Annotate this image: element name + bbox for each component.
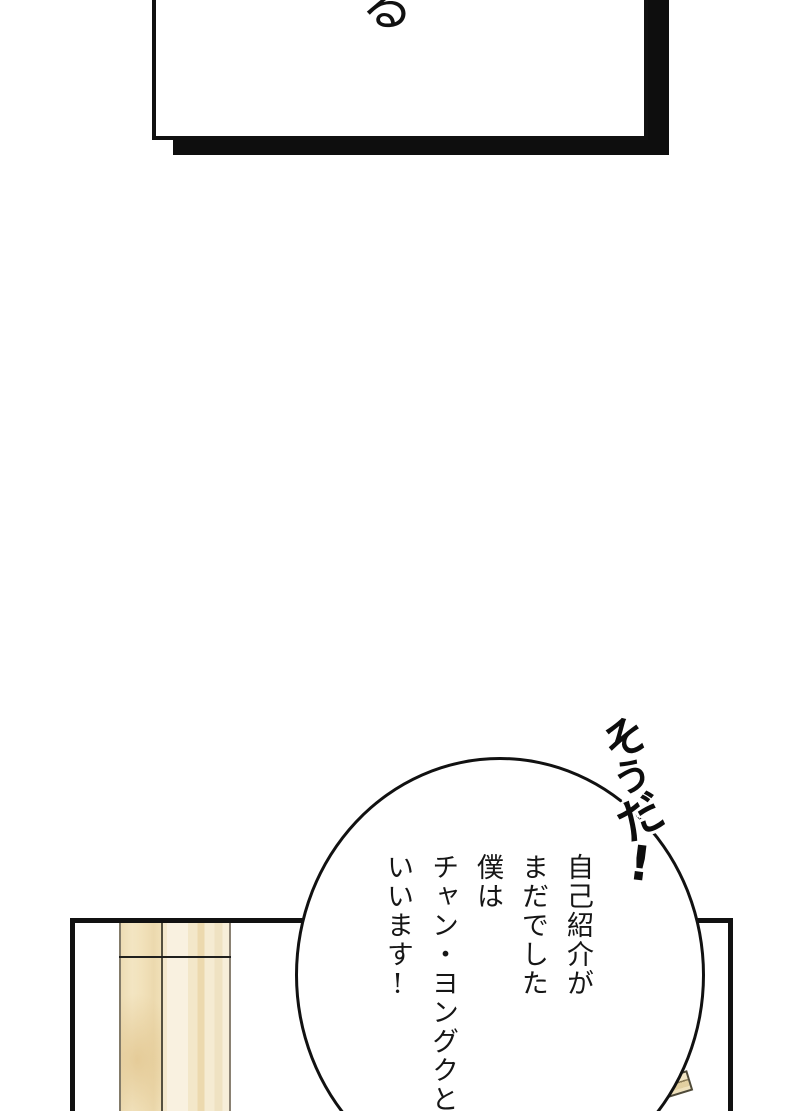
- speech-line: まだでした: [510, 853, 555, 1111]
- speech-bubble-text: 自己紹介が まだでした 僕は チャン・ヨングクと いいます!: [375, 853, 600, 1111]
- speech-line: 僕は: [465, 853, 510, 1111]
- wood-plank-right: [163, 923, 231, 1111]
- caption-box: る: [152, 0, 648, 140]
- speech-line: いいます!: [375, 853, 420, 1111]
- wood-plank-left: [119, 923, 163, 1111]
- speech-line: 自己紹介が: [555, 853, 600, 1111]
- speech-line: チャン・ヨングクと: [420, 853, 465, 1111]
- caption-text: る: [361, 0, 413, 34]
- manga-page: る 自己紹介が まだでした 僕は チャン・ヨングクと いいます! そ う だ !: [0, 0, 800, 1111]
- wood-plank-joint-line: [119, 956, 231, 958]
